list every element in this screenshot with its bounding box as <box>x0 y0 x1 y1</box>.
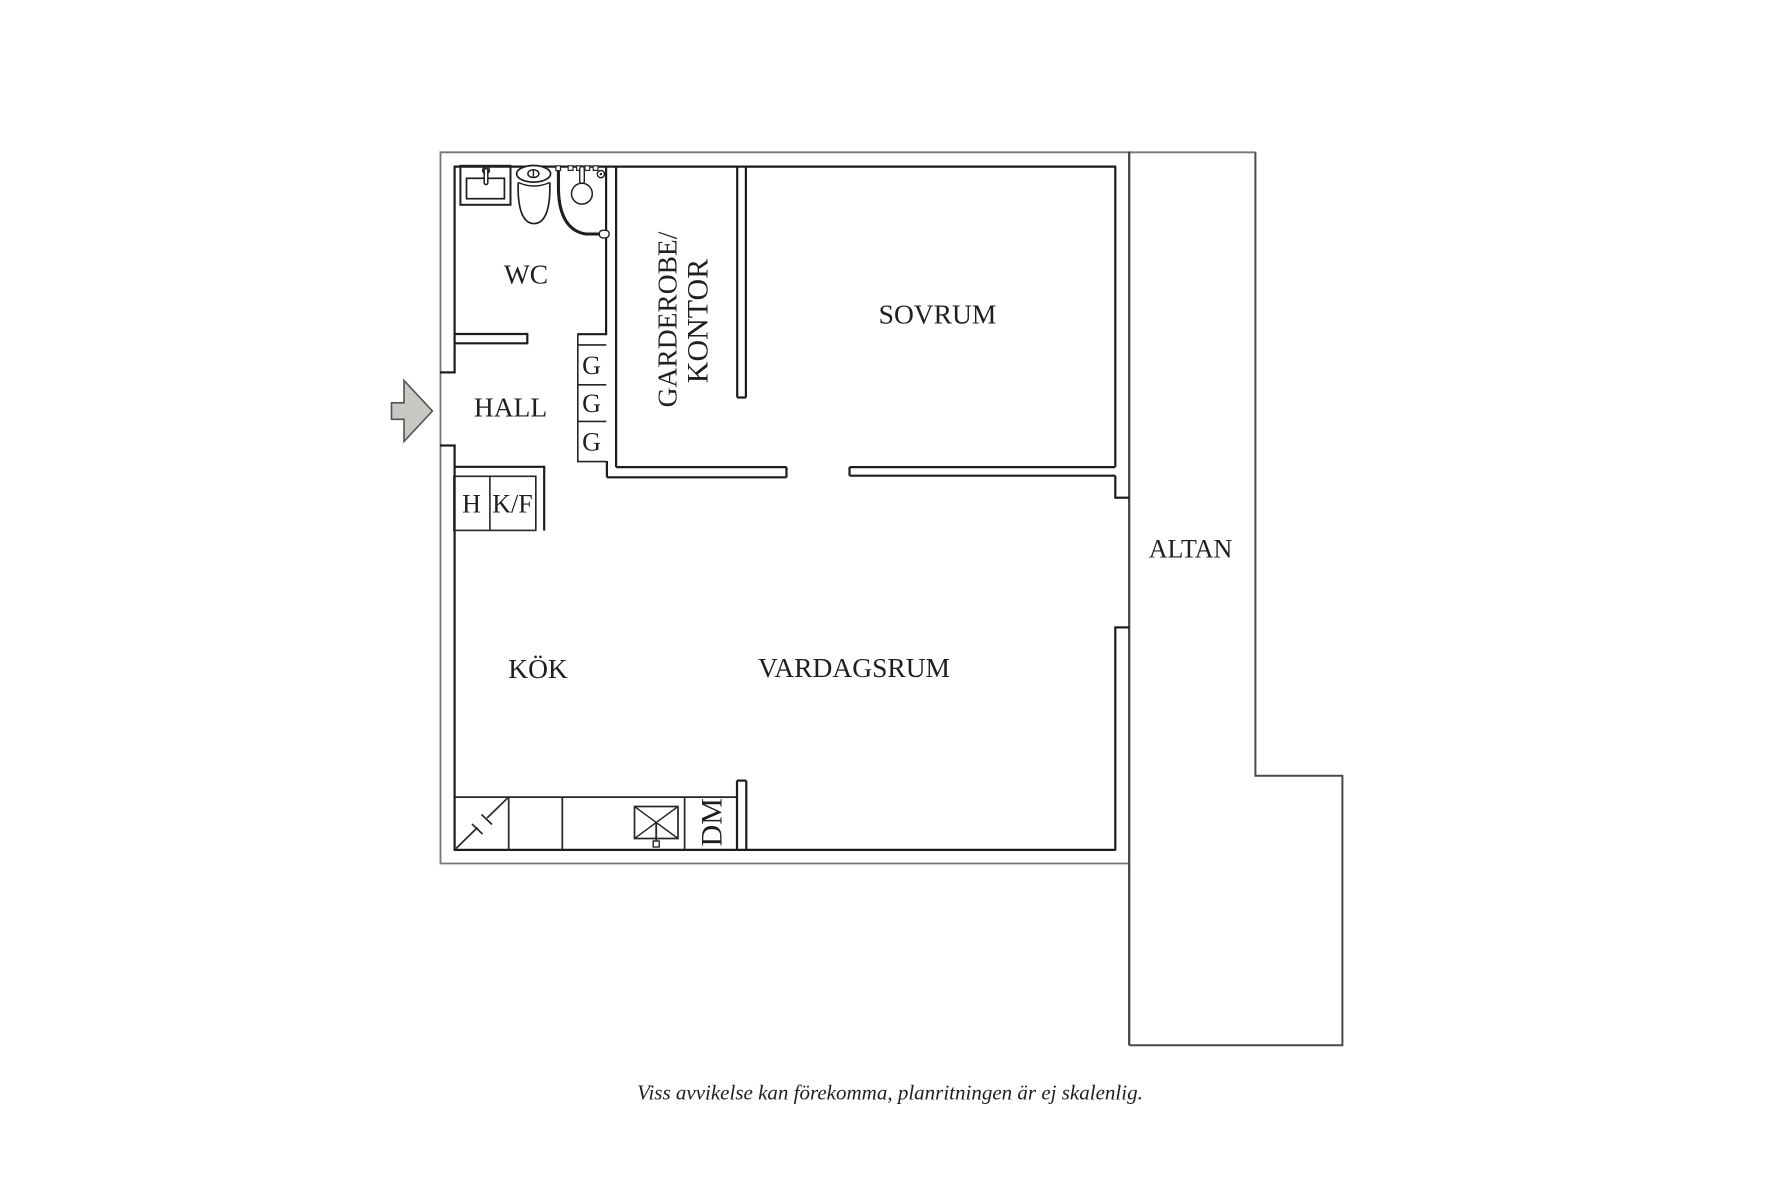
svg-text:VARDAGSRUM: VARDAGSRUM <box>758 652 950 683</box>
svg-text:G: G <box>582 389 601 418</box>
svg-text:SOVRUM: SOVRUM <box>879 299 997 330</box>
svg-text:WC: WC <box>504 259 548 290</box>
svg-text:H: H <box>462 489 481 518</box>
svg-text:KONTOR: KONTOR <box>682 259 715 383</box>
svg-text:ALTAN: ALTAN <box>1149 535 1233 564</box>
svg-text:G: G <box>582 427 601 456</box>
svg-text:K/F: K/F <box>492 489 532 518</box>
svg-text:HALL: HALL <box>474 392 547 423</box>
svg-text:Viss avvikelse kan förekomma,: Viss avvikelse kan förekomma, planritnin… <box>637 1081 1143 1105</box>
svg-text:G: G <box>582 351 601 380</box>
svg-text:GARDEROBE/: GARDEROBE/ <box>652 231 683 407</box>
svg-text:DM: DM <box>695 798 728 846</box>
svg-text:KÖK: KÖK <box>508 653 568 684</box>
